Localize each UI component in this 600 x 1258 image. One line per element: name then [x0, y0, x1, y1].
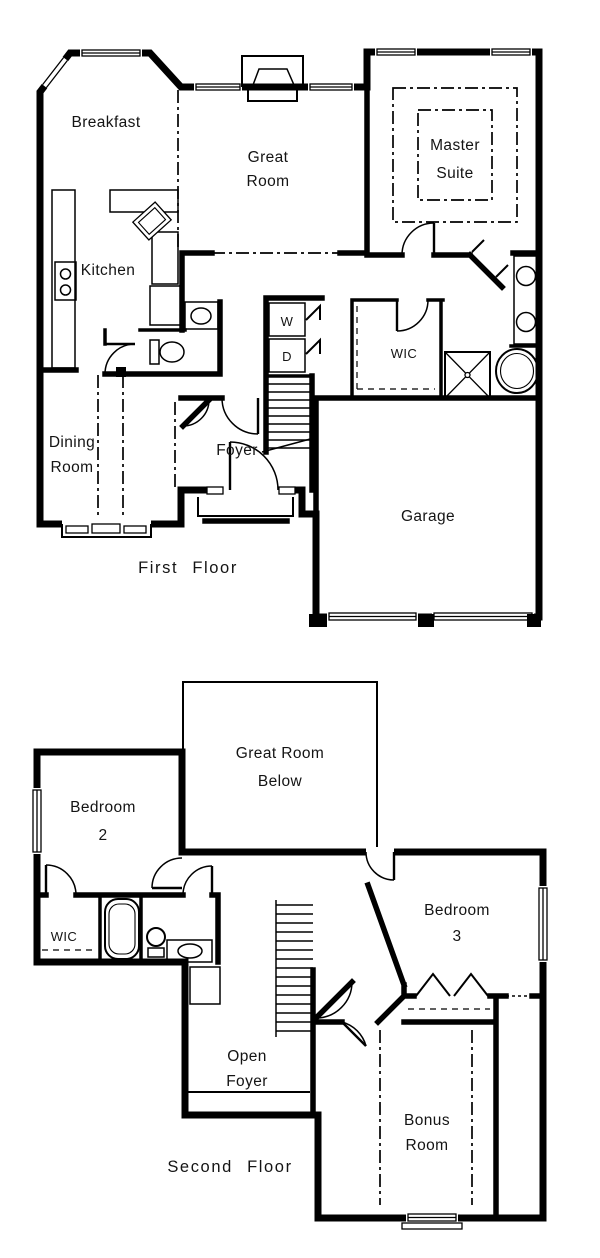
room-label-bedroom3-line1: Bedroom [424, 902, 490, 919]
dining-bay-window [62, 524, 151, 537]
room-label-dining-line1: Dining [49, 434, 95, 451]
kitchen-sink-icon [133, 202, 171, 240]
label-washer: W [281, 314, 294, 329]
powder-sink-icon [185, 302, 218, 329]
bedroom2-window [33, 790, 41, 852]
wic-door-swing [397, 300, 428, 331]
bonus-door-swing [342, 1022, 366, 1046]
room-label-great-room-line2: Room [247, 173, 290, 190]
bonus-room-window [402, 1214, 462, 1229]
shower-icon [445, 352, 490, 398]
room-label-wic-second: WIC [51, 929, 77, 944]
powder-toilet-icon [150, 340, 184, 364]
room-label-great-room-line1: Great [248, 149, 289, 166]
floor-plan-page: Breakfast Great Room Master Suite Kitche… [0, 0, 600, 1258]
staircase-first-floor [262, 384, 314, 452]
kitchen-counter-peninsula [110, 190, 178, 212]
great-room-below-outline [183, 682, 377, 850]
master-tub-icon [496, 349, 538, 393]
first-floor-partition-walls [105, 300, 539, 398]
room-label-open-foyer-line1: Open [227, 1048, 267, 1065]
caption-first-floor: First Floor [138, 559, 238, 577]
room-label-bonus-room-line1: Bonus [404, 1112, 450, 1129]
bedroom3-door-gap [366, 847, 394, 857]
room-label-foyer: Foyer [216, 442, 258, 459]
room-label-bonus-room-line2: Room [406, 1137, 449, 1154]
room-label-breakfast: Breakfast [71, 114, 140, 131]
staircase-second-floor [276, 900, 313, 1037]
room-label-open-foyer-line2: Foyer [226, 1073, 268, 1090]
room-label-bedroom2-line1: Bedroom [70, 799, 136, 816]
breakfast-bay-window-gap [41, 56, 70, 89]
dining-column-post [116, 367, 126, 377]
garage-doors [309, 613, 541, 627]
hall-door-swing [222, 398, 258, 434]
room-label-bedroom3-line2: 3 [452, 928, 461, 945]
toilet-icon [147, 928, 165, 957]
bedroom3-closet-bifold-icon [416, 974, 488, 996]
front-porch [198, 497, 293, 521]
room-label-master-suite-line1: Master [430, 137, 480, 154]
second-floor-exterior-walls [37, 752, 543, 1218]
kitchen-counter-lower [152, 232, 178, 284]
caption-second-floor: Second Floor [167, 1158, 292, 1176]
room-label-wic-first: WIC [391, 346, 417, 361]
room-label-bedroom2-line2: 2 [98, 827, 107, 844]
front-door-gap [223, 485, 279, 495]
fireplace [242, 56, 303, 101]
breakfast-window [82, 50, 140, 56]
pantry [150, 286, 182, 325]
master-vanity-sinks-icon [514, 256, 539, 344]
laundry-bifold-door-icon [306, 306, 320, 354]
room-label-dining-line2: Room [51, 459, 94, 476]
cooktop-icon [55, 262, 76, 300]
linen-closet [190, 967, 220, 1004]
room-label-master-suite-line2: Suite [436, 165, 473, 182]
master-door-swing [402, 223, 434, 255]
wic2-door-swing [46, 865, 76, 895]
first-floor-plan: Breakfast Great Room Master Suite Kitche… [40, 47, 541, 627]
room-label-kitchen: Kitchen [81, 262, 136, 279]
bedroom3-window [539, 888, 547, 960]
room-label-great-room-below-line2: Below [258, 773, 303, 790]
bath-tub-icon [105, 899, 139, 959]
floor-plan-drawing: Breakfast Great Room Master Suite Kitche… [0, 0, 600, 1258]
bath2-door-swing [183, 866, 212, 895]
master-tray-ceiling [393, 88, 517, 222]
second-floor-plan: Great Room Below Bedroom 2 WIC Bedroom 3… [32, 682, 548, 1229]
room-label-great-room-below-line1: Great Room [236, 745, 324, 762]
room-label-garage: Garage [401, 508, 455, 525]
label-dryer: D [282, 349, 292, 364]
